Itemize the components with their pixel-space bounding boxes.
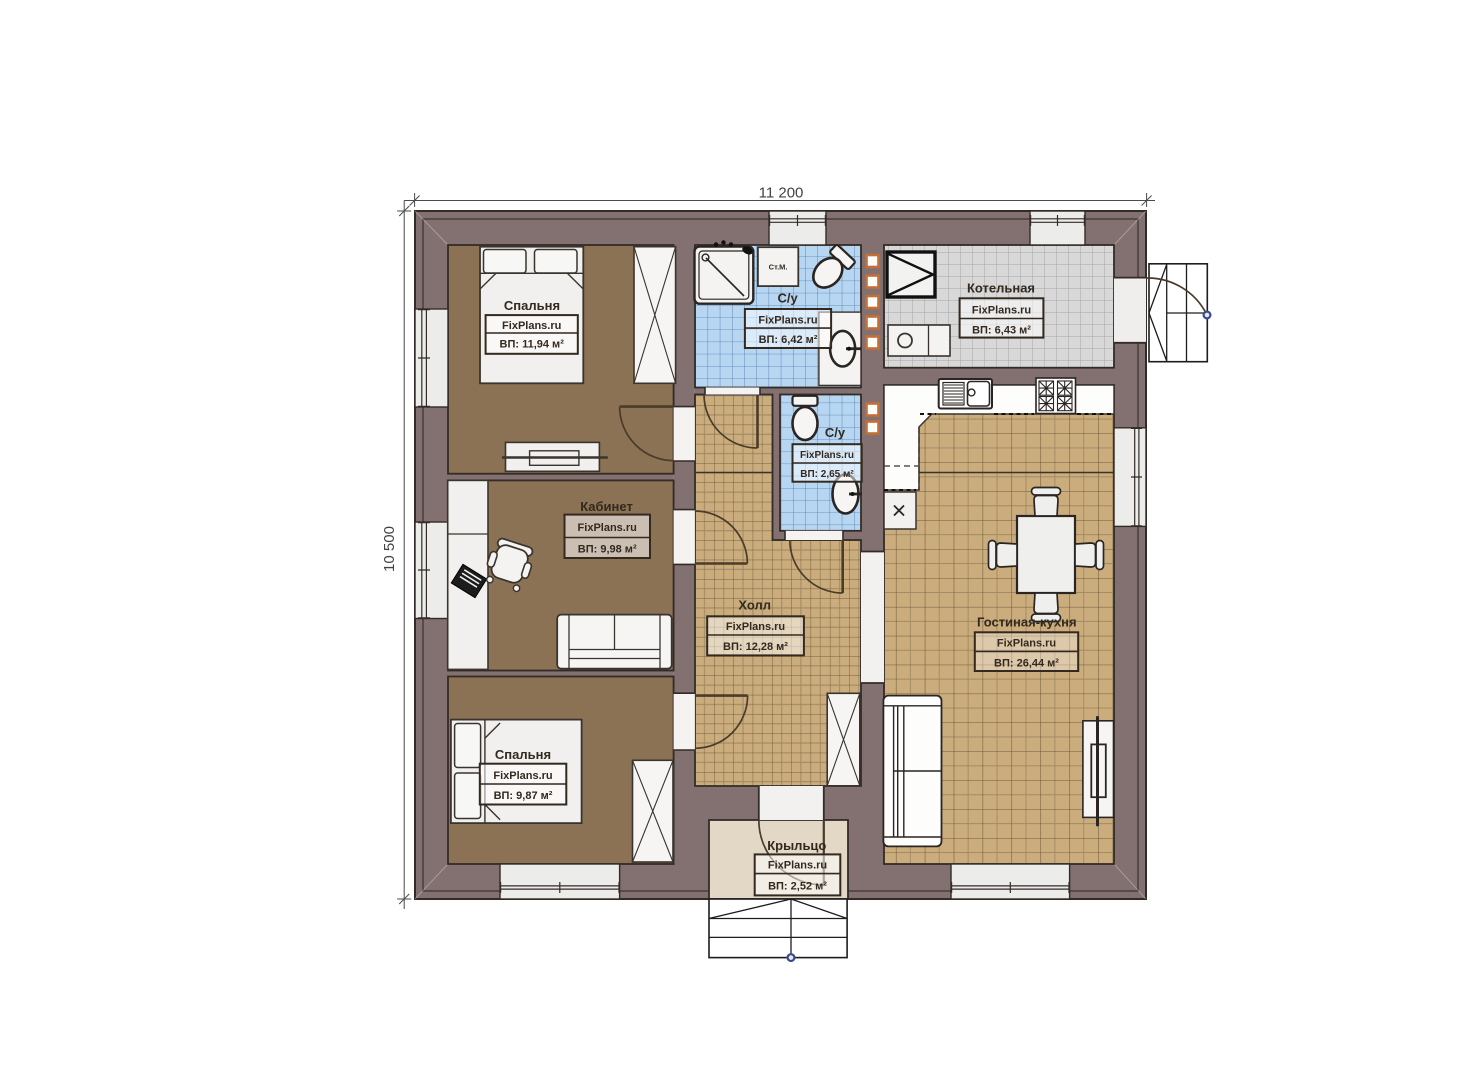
- svg-text:ВП: 9,87 м²: ВП: 9,87 м²: [494, 790, 553, 802]
- svg-text:FixPlans.ru: FixPlans.ru: [997, 638, 1056, 650]
- svg-text:FixPlans.ru: FixPlans.ru: [493, 770, 552, 782]
- svg-text:FixPlans.ru: FixPlans.ru: [502, 320, 561, 332]
- svg-text:ВП: 12,28 м²: ВП: 12,28 м²: [723, 641, 788, 653]
- svg-text:Котельная: Котельная: [967, 281, 1035, 296]
- svg-text:ВП: 2,65 м²: ВП: 2,65 м²: [800, 469, 854, 480]
- svg-text:FixPlans.ru: FixPlans.ru: [726, 621, 785, 633]
- svg-text:Кабинет: Кабинет: [580, 499, 633, 514]
- svg-text:Спальня: Спальня: [504, 298, 560, 313]
- svg-text:Спальня: Спальня: [495, 747, 551, 762]
- svg-text:Крыльцо: Крыльцо: [767, 838, 826, 853]
- svg-text:Ст.М.: Ст.М.: [769, 263, 788, 272]
- svg-text:10 500: 10 500: [381, 526, 398, 572]
- svg-text:ВП: 6,43 м²: ВП: 6,43 м²: [972, 324, 1031, 336]
- svg-text:ВП: 6,42 м²: ВП: 6,42 м²: [759, 334, 818, 346]
- svg-text:ВП: 9,98 м²: ВП: 9,98 м²: [578, 544, 637, 556]
- svg-text:FixPlans.ru: FixPlans.ru: [768, 860, 827, 872]
- svg-text:Холл: Холл: [738, 598, 771, 613]
- svg-text:FixPlans.ru: FixPlans.ru: [758, 314, 817, 326]
- svg-text:ВП: 11,94 м²: ВП: 11,94 м²: [500, 339, 565, 351]
- svg-text:11 200: 11 200: [759, 185, 804, 202]
- svg-text:FixPlans.ru: FixPlans.ru: [800, 450, 854, 461]
- svg-text:С/у: С/у: [825, 425, 846, 440]
- svg-text:С/у: С/у: [777, 291, 798, 306]
- svg-text:FixPlans.ru: FixPlans.ru: [972, 305, 1031, 317]
- svg-text:ВП: 2,52 м²: ВП: 2,52 м²: [768, 881, 827, 893]
- svg-text:Гостиная-кухня: Гостиная-кухня: [977, 615, 1077, 630]
- svg-text:FixPlans.ru: FixPlans.ru: [578, 522, 637, 534]
- svg-text:ВП: 26,44 м²: ВП: 26,44 м²: [994, 657, 1059, 669]
